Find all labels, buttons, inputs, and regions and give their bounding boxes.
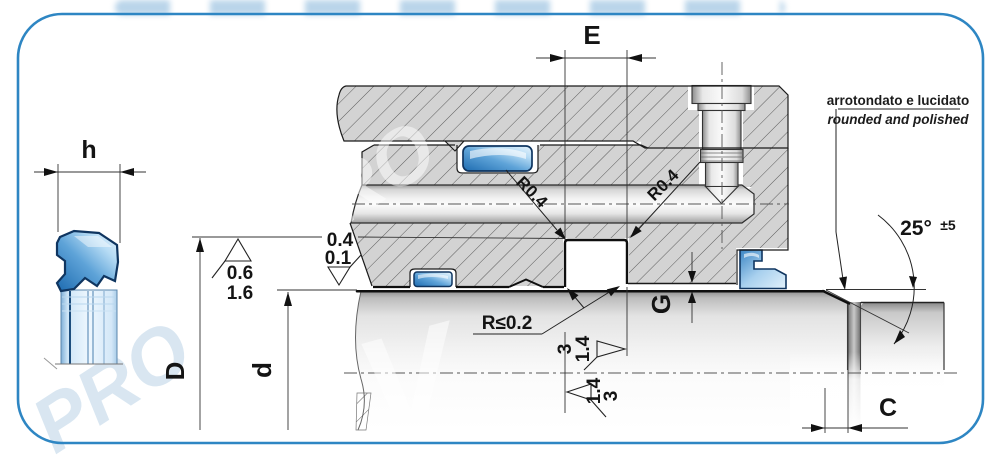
- dim-C-label: C: [879, 394, 897, 422]
- dim-h: h: [34, 136, 146, 243]
- static-seal: [463, 146, 532, 171]
- dim-h-label: h: [81, 136, 96, 164]
- clearance-gap: [628, 283, 737, 291]
- dim-D-label: D: [160, 362, 190, 381]
- sf-bore-lower: 0.1: [325, 248, 352, 269]
- dim-E-label: E: [583, 20, 600, 50]
- sf-groove-bottom-lower: 1.6: [227, 283, 253, 304]
- sf-groove-bottom-upper: 0.6: [227, 263, 253, 284]
- dim-d-label: d: [247, 362, 277, 378]
- sf-flank-right-second: 1.4: [573, 335, 594, 362]
- angle-label: 25°: [900, 217, 932, 240]
- edge-note: arrotondato e lucidato rounded and polis…: [827, 93, 970, 290]
- note-english: rounded and polished: [828, 112, 970, 127]
- dim-d: d: [247, 290, 357, 430]
- technical-drawing: PRO PRO V h: [0, 0, 1000, 461]
- seal-groove: [563, 238, 629, 290]
- catalog-installation-drawing: PRO PRO V h: [0, 0, 1000, 461]
- dim-G-label: G: [646, 294, 676, 314]
- groove-bottom-radius-label: R≤0.2: [482, 313, 533, 334]
- sf-flank-left-second: 3: [601, 391, 622, 402]
- seal-side-view: [44, 231, 123, 369]
- angle-tolerance-label: ±5: [940, 217, 956, 233]
- sf-groove-bottom: 0.6 1.6: [212, 239, 253, 304]
- note-italian: arrotondato e lucidato: [827, 93, 970, 108]
- secondary-seal: [414, 272, 452, 287]
